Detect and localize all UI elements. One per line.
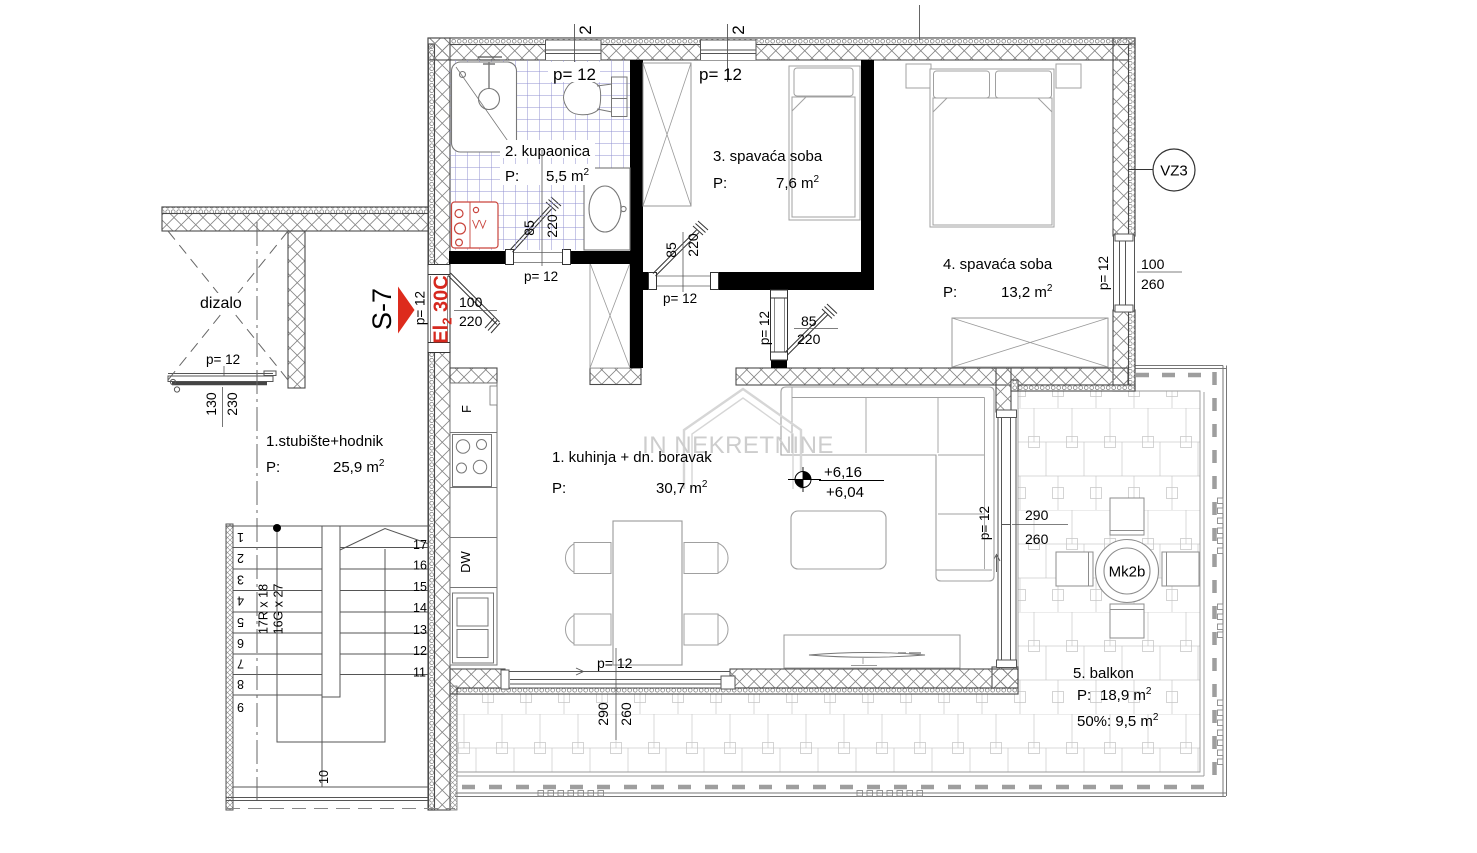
svg-text:5. balkon: 5. balkon — [1073, 665, 1134, 682]
svg-text:p= 12: p= 12 — [597, 655, 633, 671]
svg-text:85: 85 — [521, 220, 537, 236]
svg-text:Mk2b: Mk2b — [1109, 564, 1146, 581]
svg-text:F: F — [459, 405, 474, 413]
svg-text:+6,04: +6,04 — [826, 484, 864, 501]
svg-text:2: 2 — [576, 25, 595, 34]
svg-text:16G x 27: 16G x 27 — [272, 584, 286, 635]
svg-text:DW: DW — [458, 550, 473, 572]
svg-text:85: 85 — [663, 242, 679, 258]
svg-text:100: 100 — [1141, 256, 1165, 272]
svg-text:VZ3: VZ3 — [1160, 163, 1188, 180]
svg-text:16: 16 — [413, 559, 427, 573]
svg-text:El2 30C: El2 30C — [431, 275, 455, 343]
svg-text:3: 3 — [237, 573, 244, 587]
svg-text:17R x 18: 17R x 18 — [257, 584, 271, 634]
svg-text:260: 260 — [1025, 531, 1049, 547]
svg-text:p= 12: p= 12 — [413, 291, 428, 325]
svg-text:7: 7 — [237, 657, 244, 671]
svg-text:P:: P: — [1077, 687, 1091, 704]
svg-text:p= 12: p= 12 — [553, 65, 596, 84]
svg-text:6: 6 — [237, 636, 244, 650]
svg-text:18,9 m2: 18,9 m2 — [1100, 686, 1152, 704]
svg-text:12: 12 — [413, 644, 427, 658]
svg-text:13,2 m2: 13,2 m2 — [1001, 283, 1053, 301]
svg-text:230: 230 — [224, 392, 240, 416]
svg-text:13: 13 — [413, 623, 427, 637]
svg-text:15: 15 — [413, 580, 427, 594]
svg-text:2: 2 — [729, 25, 748, 34]
svg-text:290: 290 — [1025, 507, 1049, 523]
svg-text:S-7: S-7 — [367, 288, 397, 330]
svg-text:9: 9 — [237, 700, 244, 714]
svg-text:1: 1 — [237, 530, 244, 544]
svg-text:dizalo: dizalo — [200, 295, 242, 312]
svg-text:11: 11 — [413, 666, 426, 680]
svg-text:260: 260 — [1141, 276, 1165, 292]
svg-text:10: 10 — [317, 770, 331, 784]
svg-text:85: 85 — [801, 313, 817, 329]
svg-text:220: 220 — [797, 331, 821, 347]
svg-text:220: 220 — [685, 233, 701, 257]
svg-text:p= 12: p= 12 — [757, 311, 772, 345]
svg-text:P:: P: — [713, 175, 727, 192]
svg-text:30,7 m2: 30,7 m2 — [656, 479, 708, 497]
svg-text:100: 100 — [459, 294, 483, 310]
svg-text:1. kuhinja + dn. boravak: 1. kuhinja + dn. boravak — [552, 449, 712, 466]
svg-text:5,5 m2: 5,5 m2 — [546, 167, 590, 185]
svg-text:p= 12: p= 12 — [699, 65, 742, 84]
svg-text:p= 12: p= 12 — [663, 291, 697, 306]
svg-text:7,6 m2: 7,6 m2 — [776, 174, 820, 192]
svg-text:p= 12: p= 12 — [1096, 256, 1111, 290]
svg-text:17: 17 — [413, 538, 427, 552]
svg-text:260: 260 — [618, 702, 634, 726]
svg-text:14: 14 — [413, 601, 427, 615]
svg-text:p= 12: p= 12 — [206, 352, 240, 367]
svg-text:290: 290 — [595, 702, 611, 726]
svg-text:4: 4 — [237, 594, 244, 608]
svg-text:P:: P: — [266, 459, 280, 476]
svg-text:220: 220 — [459, 313, 483, 329]
svg-text:130: 130 — [203, 392, 219, 416]
svg-text:P:: P: — [943, 284, 957, 301]
svg-text:3. spavaća soba: 3. spavaća soba — [713, 148, 823, 165]
svg-text:2. kupaonica: 2. kupaonica — [505, 143, 591, 160]
svg-text:25,9 m2: 25,9 m2 — [333, 458, 385, 476]
svg-text:220: 220 — [544, 214, 560, 238]
svg-text:p= 12: p= 12 — [524, 269, 558, 284]
svg-text:50%: 9,5 m2: 50%: 9,5 m2 — [1077, 712, 1159, 730]
svg-text:8: 8 — [237, 677, 244, 691]
svg-text:4. spavaća soba: 4. spavaća soba — [943, 256, 1053, 273]
svg-text:+6,16: +6,16 — [824, 464, 862, 481]
svg-text:P:: P: — [505, 168, 519, 185]
svg-text:5: 5 — [237, 615, 244, 629]
svg-text:1.stubište+hodnik: 1.stubište+hodnik — [266, 433, 384, 450]
svg-text:2: 2 — [237, 551, 244, 565]
svg-text:P:: P: — [552, 480, 566, 497]
svg-text:p= 12: p= 12 — [977, 506, 992, 540]
